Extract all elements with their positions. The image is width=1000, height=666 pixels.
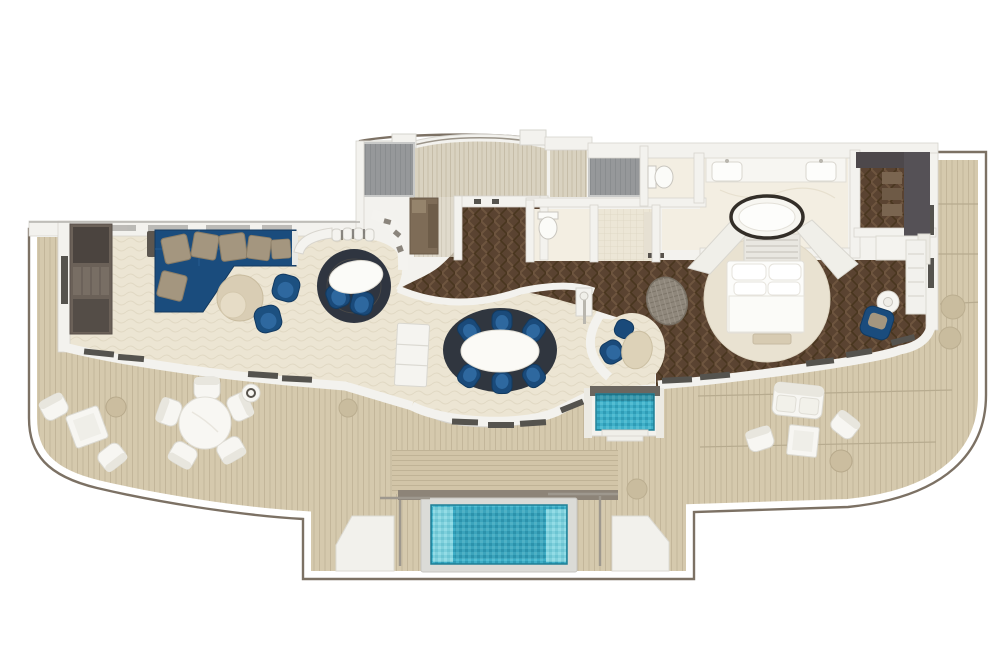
wardrobe-side: [904, 152, 930, 236]
sink-left: [712, 162, 742, 181]
closet-shelf: [882, 172, 902, 184]
whirlpool-step: [602, 430, 648, 436]
shower-floor: [598, 209, 652, 261]
outdoor-side-table: [242, 384, 260, 402]
bed-duvet: [729, 296, 804, 332]
closet-shelf: [882, 204, 902, 216]
dining-console: [394, 323, 429, 387]
bed-pillow: [768, 282, 800, 295]
bed-pillow: [732, 264, 766, 280]
curved-entry-wall: [413, 142, 547, 198]
foot-bench: [753, 334, 791, 344]
sink-right: [806, 162, 836, 181]
bed-pillow: [769, 264, 801, 280]
closet-shelf: [882, 188, 902, 200]
deck-pouf: [106, 397, 126, 417]
window-left: [61, 256, 68, 304]
faucet: [819, 159, 823, 163]
oval-dining-table: [461, 330, 539, 372]
pantry-shelf: [412, 200, 426, 213]
floor-plan-drawing: [0, 0, 1000, 666]
dining-chair: [492, 373, 512, 394]
arc-pillar-right: [520, 130, 546, 145]
dining-chair: [492, 311, 512, 332]
media-lounge: [317, 249, 391, 323]
toilet-guest: [538, 212, 558, 239]
closet-left: [362, 143, 414, 196]
pool-bench-right: [546, 509, 566, 562]
oval-bathtub: [731, 196, 803, 238]
toilet-main: [648, 166, 673, 188]
king-bed: [727, 261, 804, 344]
tv-console: [906, 240, 926, 314]
floor-plan-stage: [0, 0, 1000, 666]
tambour-panel: [550, 150, 587, 197]
media-wall-cabinet: [70, 224, 112, 334]
deck-pouf: [830, 450, 852, 472]
bed-pillow: [734, 282, 766, 295]
outdoor-round-table: [179, 397, 231, 449]
pantry-cabinet-front: [428, 204, 438, 248]
outdoor-square-table: [787, 425, 820, 458]
whirlpool-step: [607, 436, 643, 441]
outdoor-loveseat: [771, 381, 824, 419]
faucet: [725, 159, 729, 163]
pool-bench-left: [433, 507, 453, 562]
